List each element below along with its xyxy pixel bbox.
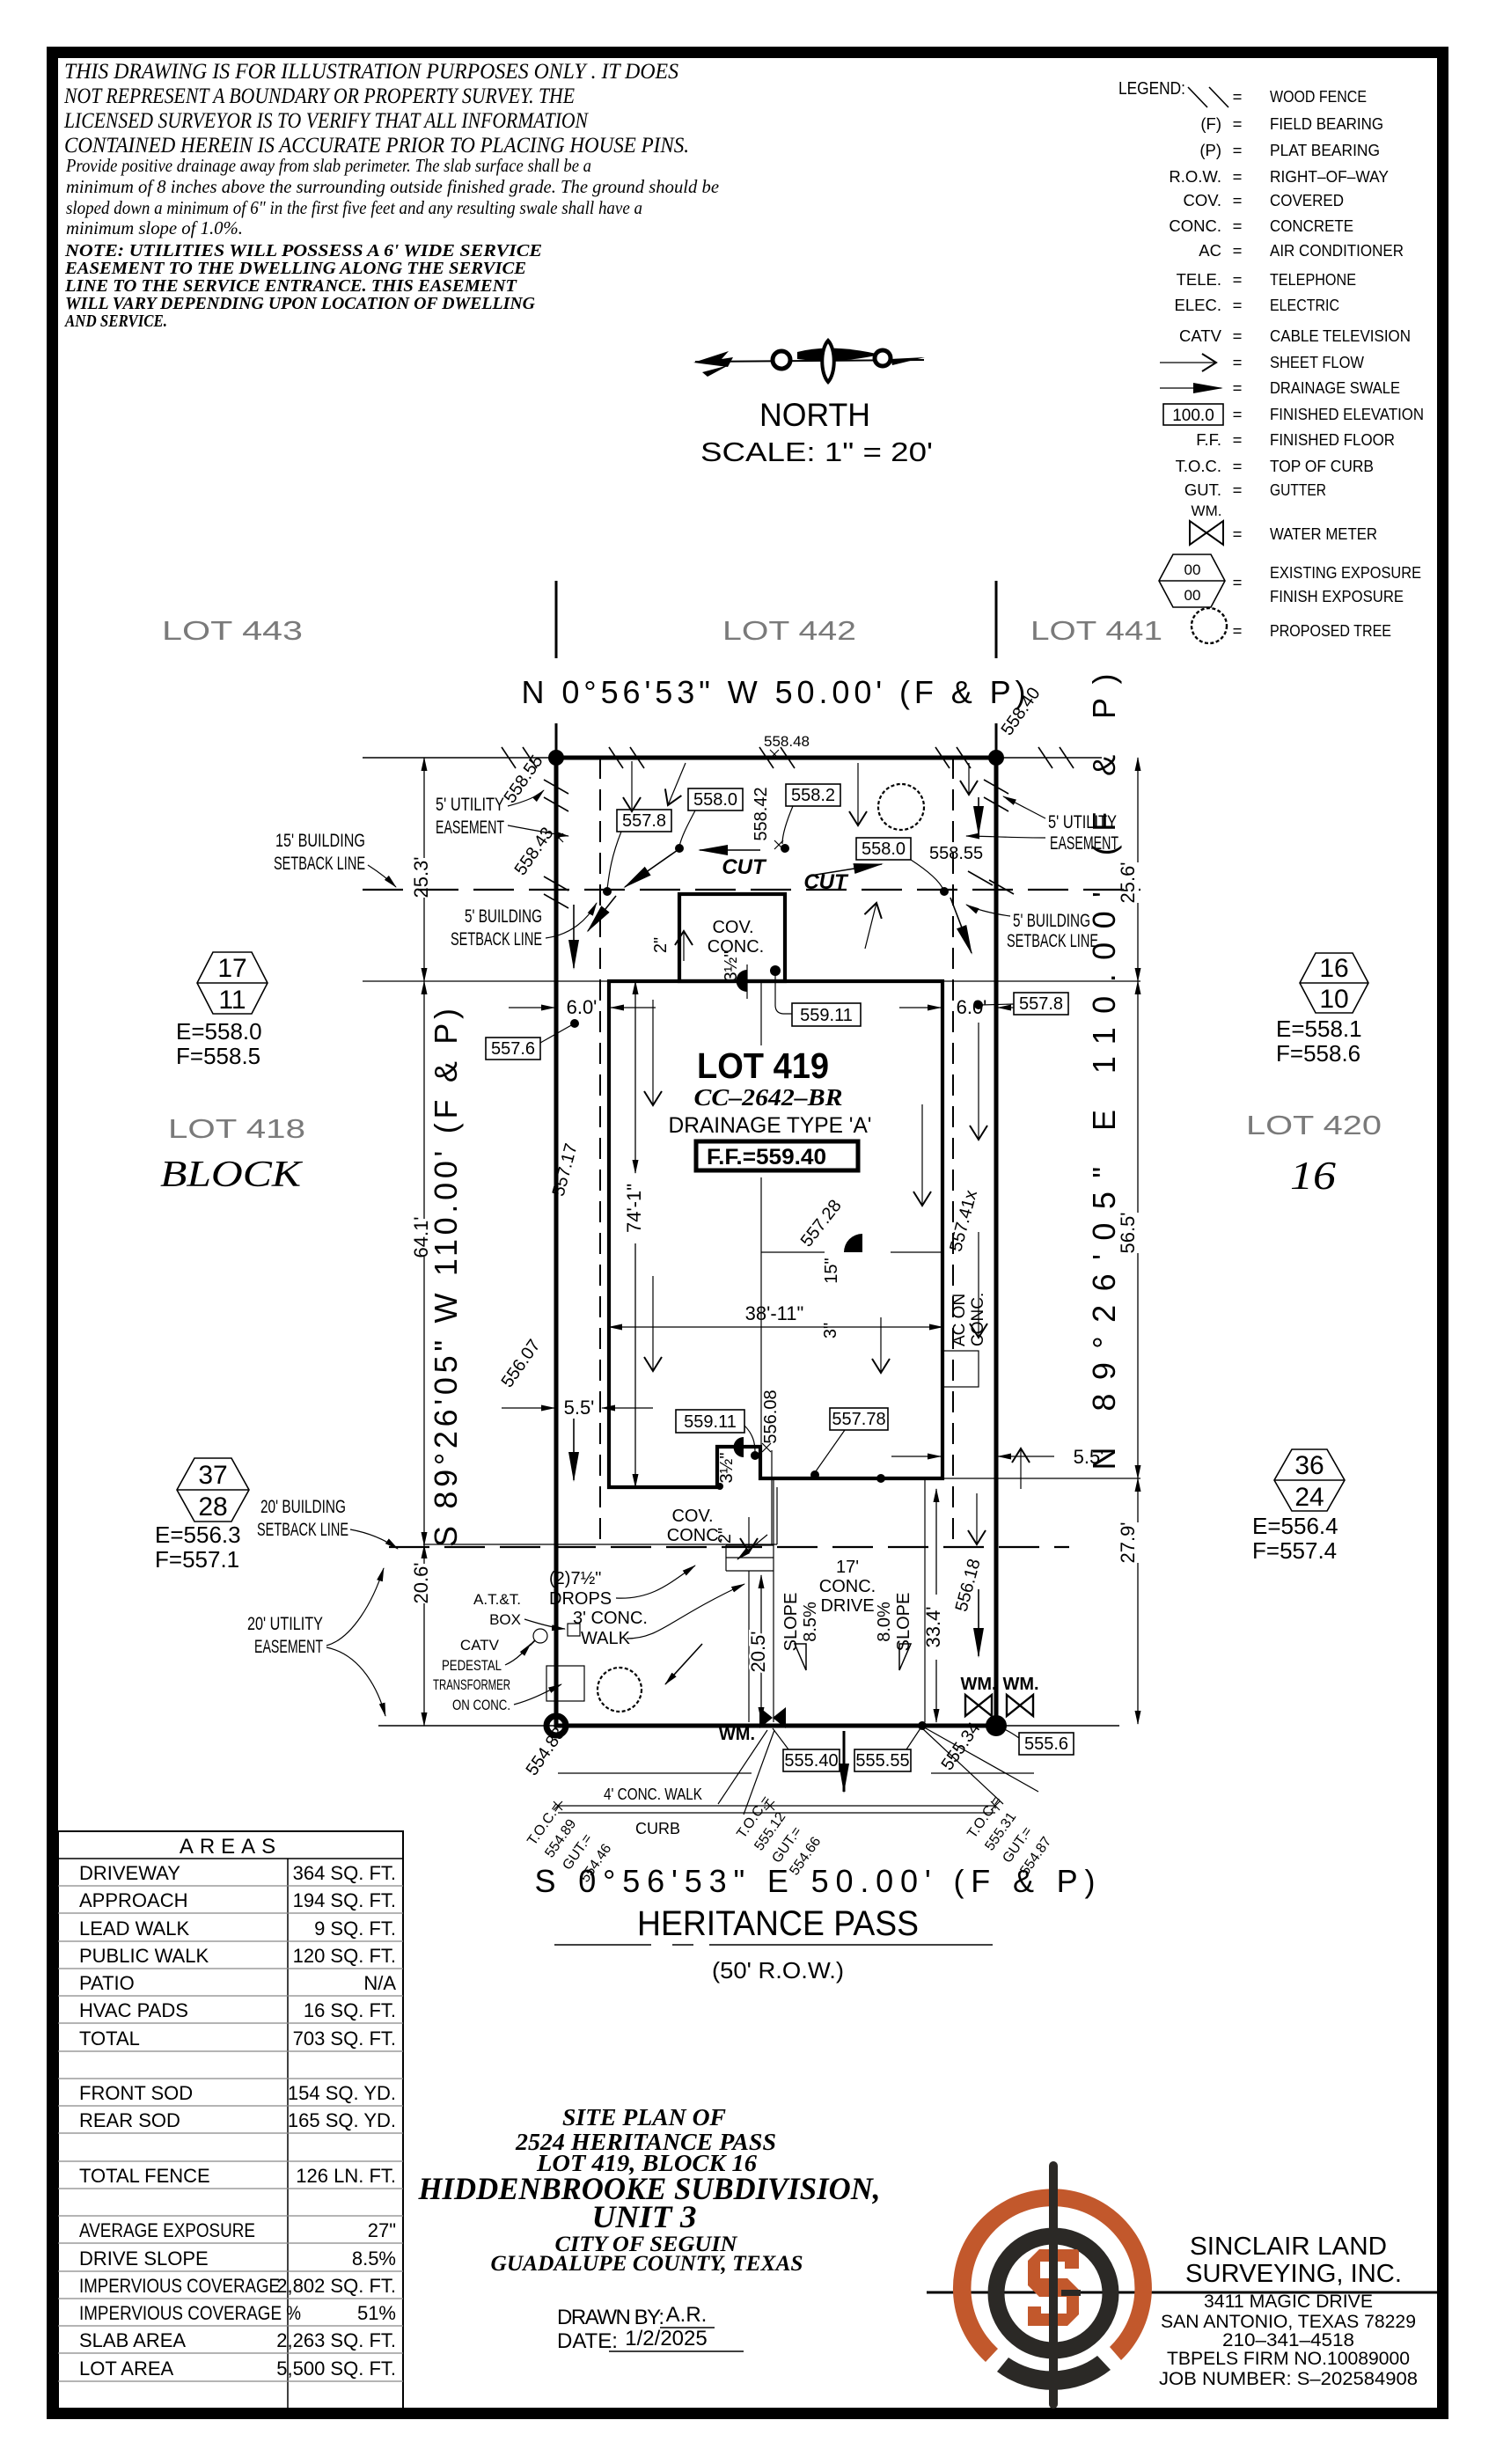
svg-text:NOTE: UTILITIES WILL POSSES: NOTE: UTILITIES WILL POSSESS A 6' WIDE S… [64,241,542,260]
svg-text:SETBACK LINE: SETBACK LINE [257,1520,348,1540]
svg-text:F=558.6: F=558.6 [1276,1040,1360,1067]
svg-text:20.5': 20.5' [747,1631,769,1672]
svg-text:CATV: CATV [1179,326,1222,345]
svg-text:TOTAL FENCE: TOTAL FENCE [79,2165,210,2187]
svg-text:GUADALUPE COUNTY, TEXAS: GUADALUPE COUNTY, TEXAS [491,2252,803,2276]
svg-text:TBPELS FIRM NO.10089000: TBPELS FIRM NO.10089000 [1167,2349,1410,2369]
svg-text:DRAWN BY:: DRAWN BY: [557,2306,664,2329]
svg-text:1/2/2025: 1/2/2025 [625,2327,707,2350]
svg-text:SAN ANTONIO, TEXAS 78229: SAN ANTONIO, TEXAS 78229 [1161,2312,1416,2332]
svg-text:=: = [1233,430,1243,449]
svg-text:(2)7½": (2)7½" [549,1569,601,1588]
svg-text:FIELD BEARING: FIELD BEARING [1270,114,1383,133]
svg-text:20' BUILDING: 20' BUILDING [260,1497,346,1517]
svg-text:FINISH EXPOSURE: FINISH EXPOSURE [1270,587,1404,605]
svg-text:REAR SOD: REAR SOD [79,2109,180,2131]
svg-text:BLOCK: BLOCK [160,1155,303,1195]
svg-text:17: 17 [217,954,246,983]
svg-text:Provide positive drainage away: Provide positive drainage away from slab… [65,155,591,176]
svg-text:F=557.1: F=557.1 [155,1546,239,1573]
svg-text:(P): (P) [1199,141,1221,159]
svg-text:EASEMENT: EASEMENT [1050,833,1118,854]
svg-text:DRAINAGE TYPE 'A': DRAINAGE TYPE 'A' [669,1113,872,1138]
svg-text:sloped down a minimum of 6" in: sloped down a minimum of 6" in the first… [66,197,642,218]
svg-text:2,263 SQ. FT.: 2,263 SQ. FT. [276,2329,396,2351]
svg-text:F.F.=559.40: F.F.=559.40 [707,1145,826,1170]
svg-text:8.5%: 8.5% [352,2248,396,2270]
svg-text:AC ON: AC ON [950,1294,969,1346]
svg-text:CONC.: CONC. [1169,216,1221,235]
svg-text:10: 10 [1319,985,1348,1014]
svg-text:20' UTILITY: 20' UTILITY [247,1614,323,1634]
svg-text:COV.: COV. [671,1507,713,1526]
svg-text:=: = [1233,87,1243,106]
svg-text:DRIVE SLOPE: DRIVE SLOPE [79,2248,209,2270]
svg-text:HERITANCE PASS: HERITANCE PASS [637,1904,919,1943]
svg-text:4' CONC. WALK: 4' CONC. WALK [604,1786,702,1803]
svg-text:555.6: 555.6 [1024,1734,1068,1754]
svg-text:ELECTRIC: ELECTRIC [1270,296,1339,314]
svg-text:PEDESTAL: PEDESTAL [442,1657,502,1674]
svg-text:=: = [1233,621,1243,640]
svg-text:555.55: 555.55 [855,1751,909,1771]
svg-text:364 SQ. FT.: 364 SQ. FT. [293,1862,396,1884]
svg-text:WM.: WM. [1192,502,1222,519]
svg-text:(F): (F) [1200,114,1221,133]
svg-text:558.48: 558.48 [764,733,810,750]
svg-text:8.5%: 8.5% [801,1602,820,1642]
svg-text:E=556.4: E=556.4 [1252,1513,1338,1539]
svg-text:=: = [1233,378,1243,397]
svg-text:minimum slope of 1.0%.: minimum slope of 1.0%. [66,217,243,238]
svg-text:DRAINAGE SWALE: DRAINAGE SWALE [1270,378,1400,397]
svg-text:37: 37 [198,1461,227,1490]
svg-text:5' UTILITY: 5' UTILITY [1048,812,1117,832]
svg-text:28: 28 [198,1492,227,1522]
svg-text:3' CONC.: 3' CONC. [573,1609,648,1628]
svg-text:FINISHED ELEVATION: FINISHED ELEVATION [1270,405,1424,423]
svg-text:(50' R.O.W.): (50' R.O.W.) [712,1957,844,1984]
svg-text:R.O.W.: R.O.W. [1169,167,1221,186]
svg-text:557.8: 557.8 [622,811,666,831]
svg-text:165 SQ. YD.: 165 SQ. YD. [288,2109,396,2131]
svg-text:SHEET FLOW: SHEET FLOW [1270,353,1364,371]
svg-text:GUT.: GUT. [1184,480,1221,499]
svg-text:PUBLIC WALK: PUBLIC WALK [79,1945,209,1967]
svg-text:3": 3" [821,1323,840,1338]
svg-text:TELE.: TELE. [1177,270,1221,289]
svg-text:=: = [1233,405,1243,423]
svg-text:WILL VARY DEPENDING UPON L: WILL VARY DEPENDING UPON LOCATION OF DWE… [65,294,536,313]
svg-text:CUT: CUT [803,870,849,894]
svg-text:56.5': 56.5' [1117,1212,1139,1253]
svg-text:556.08: 556.08 [761,1390,781,1443]
svg-text:LINE TO THE SERVICE ENTRAN: LINE TO THE SERVICE ENTRANCE. THIS EASEM… [64,276,517,296]
svg-text:=: = [1233,353,1243,371]
svg-text:WM.: WM. [960,1675,996,1694]
svg-text:PATIO: PATIO [79,1972,135,1994]
svg-text:17': 17' [836,1558,859,1577]
svg-text:PLAT BEARING: PLAT BEARING [1270,141,1380,159]
svg-text:27.9': 27.9' [1117,1522,1139,1563]
svg-text:558.2: 558.2 [791,786,835,805]
svg-text:SLOPE: SLOPE [894,1593,913,1652]
svg-text:WOOD FENCE: WOOD FENCE [1270,87,1367,106]
svg-text:=: = [1233,480,1243,499]
svg-text:T.O.C.: T.O.C. [1176,457,1221,475]
svg-text:F=557.4: F=557.4 [1252,1537,1337,1564]
svg-text:CABLE TELEVISION: CABLE TELEVISION [1270,326,1411,345]
svg-text:COV.: COV. [712,918,753,937]
svg-text:557.6: 557.6 [491,1039,535,1059]
svg-text:15' BUILDING: 15' BUILDING [275,831,365,851]
svg-text:555.40: 555.40 [784,1751,838,1771]
svg-text:DRIVEWAY: DRIVEWAY [79,1862,180,1884]
svg-text:2": 2" [651,937,671,953]
svg-text:CONC.: CONC. [819,1577,876,1596]
svg-text:E=558.0: E=558.0 [176,1018,262,1045]
svg-text:SITE PLAN OF: SITE PLAN OF [562,2104,726,2130]
svg-text:HVAC PADS: HVAC PADS [79,1999,188,2021]
svg-text:9 SQ. FT.: 9 SQ. FT. [314,1918,396,1940]
svg-text:16: 16 [1290,1153,1336,1198]
svg-text:N/A: N/A [363,1972,396,1994]
svg-text:5' BUILDING: 5' BUILDING [465,906,542,927]
svg-text:=: = [1233,167,1243,186]
svg-text:5.5': 5.5' [1074,1446,1104,1468]
svg-text:DRIVE: DRIVE [820,1596,874,1616]
svg-text:20.6': 20.6' [410,1562,432,1603]
svg-text:BOX: BOX [489,1611,521,1628]
svg-text:=: = [1233,114,1243,133]
svg-text:5.5': 5.5' [564,1397,595,1419]
svg-text:194 SQ. FT.: 194 SQ. FT. [293,1889,396,1911]
svg-text:LOT 420: LOT 420 [1246,1110,1382,1140]
svg-text:=: = [1233,241,1243,260]
svg-text:CC–2642–BR: CC–2642–BR [694,1084,843,1111]
svg-text:RIGHT–OF–WAY: RIGHT–OF–WAY [1270,167,1389,186]
svg-text:38'-11": 38'-11" [745,1302,804,1324]
svg-text:557.78: 557.78 [832,1410,885,1429]
svg-text:703 SQ. FT.: 703 SQ. FT. [293,2028,396,2050]
svg-text:LOT 441: LOT 441 [1030,615,1162,646]
svg-text:COVERED: COVERED [1270,191,1344,209]
svg-text:ELEC.: ELEC. [1175,296,1221,314]
svg-text:A.R.: A.R. [666,2303,708,2327]
svg-text:AND SERVICE.: AND SERVICE. [63,312,167,331]
svg-text:ON CONC.: ON CONC. [452,1697,510,1713]
svg-text:24: 24 [1294,1483,1324,1512]
svg-text:AREAS: AREAS [180,1835,282,1859]
svg-text:NOT REPRESENT A BOUNDARY OR PR: NOT REPRESENT A BOUNDARY OR PROPERTY SUR… [63,84,575,108]
svg-text:120 SQ. FT.: 120 SQ. FT. [293,1945,396,1967]
svg-text:IMPERVIOUS COVERAGE %: IMPERVIOUS COVERAGE % [79,2302,301,2324]
svg-text:SETBACK LINE: SETBACK LINE [274,854,365,874]
svg-text:COV.: COV. [1183,191,1221,209]
svg-text:LEGEND:: LEGEND: [1118,79,1185,99]
svg-text:558.55: 558.55 [929,844,983,863]
svg-text:15": 15" [822,1258,841,1283]
svg-text:27": 27" [368,2219,396,2241]
svg-text:THIS DRAWING IS FOR ILLUSTRATI: THIS DRAWING IS FOR ILLUSTRATION PURPOSE… [64,60,678,84]
svg-text:00: 00 [1184,587,1201,604]
svg-text:5' BUILDING: 5' BUILDING [1013,911,1090,931]
svg-text:AVERAGE EXPOSURE: AVERAGE EXPOSURE [79,2219,255,2241]
svg-text:JOB NUMBER: S–202584908: JOB NUMBER: S–202584908 [1159,2369,1418,2389]
svg-text:558.0: 558.0 [862,840,906,859]
svg-text:8.0%: 8.0% [875,1602,894,1642]
svg-text:minimum of 8 inches above the: minimum of 8 inches above the surroundin… [66,176,719,197]
svg-text:559.11: 559.11 [800,1006,853,1025]
svg-text:11: 11 [218,986,246,1015]
svg-text:EASEMENT TO THE DWELLING A: EASEMENT TO THE DWELLING ALONG THE SERVI… [64,259,526,278]
svg-text:FRONT SOD: FRONT SOD [79,2082,193,2104]
svg-text:E=558.1: E=558.1 [1276,1016,1362,1042]
svg-text:3411 MAGIC DRIVE: 3411 MAGIC DRIVE [1204,2292,1373,2312]
svg-text:SURVEYING, INC.: SURVEYING, INC. [1185,2260,1402,2288]
svg-text:5' UTILITY: 5' UTILITY [436,795,504,815]
svg-text:EASEMENT: EASEMENT [254,1637,323,1657]
svg-text:SCALE: 1" = 20': SCALE: 1" = 20' [700,436,933,467]
svg-text:=: = [1233,191,1243,209]
svg-text:154 SQ. YD.: 154 SQ. YD. [288,2082,396,2104]
svg-text:EASEMENT: EASEMENT [436,818,504,838]
svg-text:36: 36 [1294,1451,1324,1480]
svg-text:74'-1": 74'-1" [623,1184,645,1233]
svg-text:558.0: 558.0 [693,790,737,810]
svg-text:=: = [1233,141,1243,159]
svg-text:TOTAL: TOTAL [79,2028,140,2050]
svg-text:2,802 SQ. FT.: 2,802 SQ. FT. [276,2275,396,2297]
svg-text:DATE:: DATE: [557,2329,618,2353]
svg-text:F=558.5: F=558.5 [176,1043,260,1069]
svg-text:NORTH: NORTH [759,397,870,433]
svg-text:=: = [1233,573,1243,591]
svg-text:33.4': 33.4' [922,1606,944,1647]
svg-text:126 LN. FT.: 126 LN. FT. [296,2165,396,2187]
svg-text:WATER METER: WATER METER [1270,524,1377,543]
svg-text:GUTTER: GUTTER [1270,480,1326,499]
svg-text:210–341–4518: 210–341–4518 [1222,2330,1354,2350]
svg-text:557.8: 557.8 [1019,994,1063,1014]
svg-text:LOT 418: LOT 418 [168,1113,305,1144]
svg-text:559.11: 559.11 [684,1412,737,1432]
svg-text:SETBACK LINE: SETBACK LINE [451,929,542,950]
svg-text:16 SQ. FT.: 16 SQ. FT. [304,1999,396,2021]
svg-text:6.0': 6.0' [567,996,598,1018]
svg-text:51%: 51% [357,2302,396,2324]
svg-text:CONCRETE: CONCRETE [1270,216,1353,235]
svg-text:25.3': 25.3' [410,856,432,898]
svg-text:PROPOSED TREE: PROPOSED TREE [1270,621,1391,640]
svg-text:LOT 419: LOT 419 [697,1045,829,1086]
svg-text:FINISHED FLOOR: FINISHED FLOOR [1270,430,1395,449]
svg-text:CATV: CATV [460,1637,500,1654]
svg-text:00: 00 [1184,561,1201,578]
svg-text:WALK: WALK [581,1629,631,1648]
svg-text:LOT 443: LOT 443 [162,615,303,646]
svg-text:CURB: CURB [635,1820,680,1837]
svg-text:SLOPE: SLOPE [781,1593,801,1652]
svg-text:TOP OF CURB: TOP OF CURB [1270,457,1374,475]
svg-text:E=556.3: E=556.3 [155,1522,241,1548]
svg-text:=: = [1233,296,1243,314]
svg-text:=: = [1233,524,1243,543]
svg-text:25.6': 25.6' [1117,862,1139,903]
svg-text:A.T.&T.: A.T.&T. [473,1591,521,1608]
svg-text:F.F.: F.F. [1196,430,1221,449]
svg-text:CONC.: CONC. [708,937,764,957]
svg-text:=: = [1233,457,1243,475]
svg-text:SINCLAIR LAND: SINCLAIR LAND [1190,2233,1387,2261]
svg-text:TRANSFORMER: TRANSFORMER [433,1676,510,1693]
svg-text:IMPERVIOUS COVERAGE: IMPERVIOUS COVERAGE [79,2275,280,2297]
svg-text:EXISTING EXPOSURE: EXISTING EXPOSURE [1270,563,1421,582]
svg-text:UNIT 3: UNIT 3 [592,2199,697,2234]
svg-text:AC: AC [1199,241,1221,260]
svg-text:CONTAINED HEREIN IS ACCURATE P: CONTAINED HEREIN IS ACCURATE PRIOR TO PL… [64,134,689,158]
svg-text:AIR CONDITIONER: AIR CONDITIONER [1270,241,1404,260]
svg-text:100.0: 100.0 [1172,407,1214,425]
svg-text:=: = [1233,326,1243,345]
svg-text:CUT: CUT [722,855,767,879]
svg-text:DROPS: DROPS [549,1589,612,1609]
svg-text:16: 16 [1319,954,1348,983]
svg-text:LOT 442: LOT 442 [722,615,856,646]
svg-text:APPROACH: APPROACH [79,1889,187,1911]
svg-text:LICENSED SURVEYOR IS TO VERIFY: LICENSED SURVEYOR IS TO VERIFY THAT ALL … [63,109,589,133]
svg-text:3½": 3½" [717,1453,737,1484]
svg-text:TELEPHONE: TELEPHONE [1270,270,1356,289]
svg-text:SLAB AREA: SLAB AREA [79,2329,186,2351]
svg-text:2": 2" [715,1528,735,1544]
svg-text:558.42: 558.42 [752,787,771,840]
svg-text:=: = [1233,270,1243,289]
svg-text:WM.: WM. [1002,1675,1038,1694]
svg-text:LOT AREA: LOT AREA [79,2358,174,2380]
svg-text:WM.: WM. [719,1725,755,1744]
svg-text:SETBACK LINE: SETBACK LINE [1007,931,1098,951]
svg-text:5,500 SQ. FT.: 5,500 SQ. FT. [276,2358,396,2380]
svg-text:LEAD WALK: LEAD WALK [79,1918,189,1940]
svg-text:64.1': 64.1' [410,1216,432,1258]
svg-text:=: = [1233,216,1243,235]
